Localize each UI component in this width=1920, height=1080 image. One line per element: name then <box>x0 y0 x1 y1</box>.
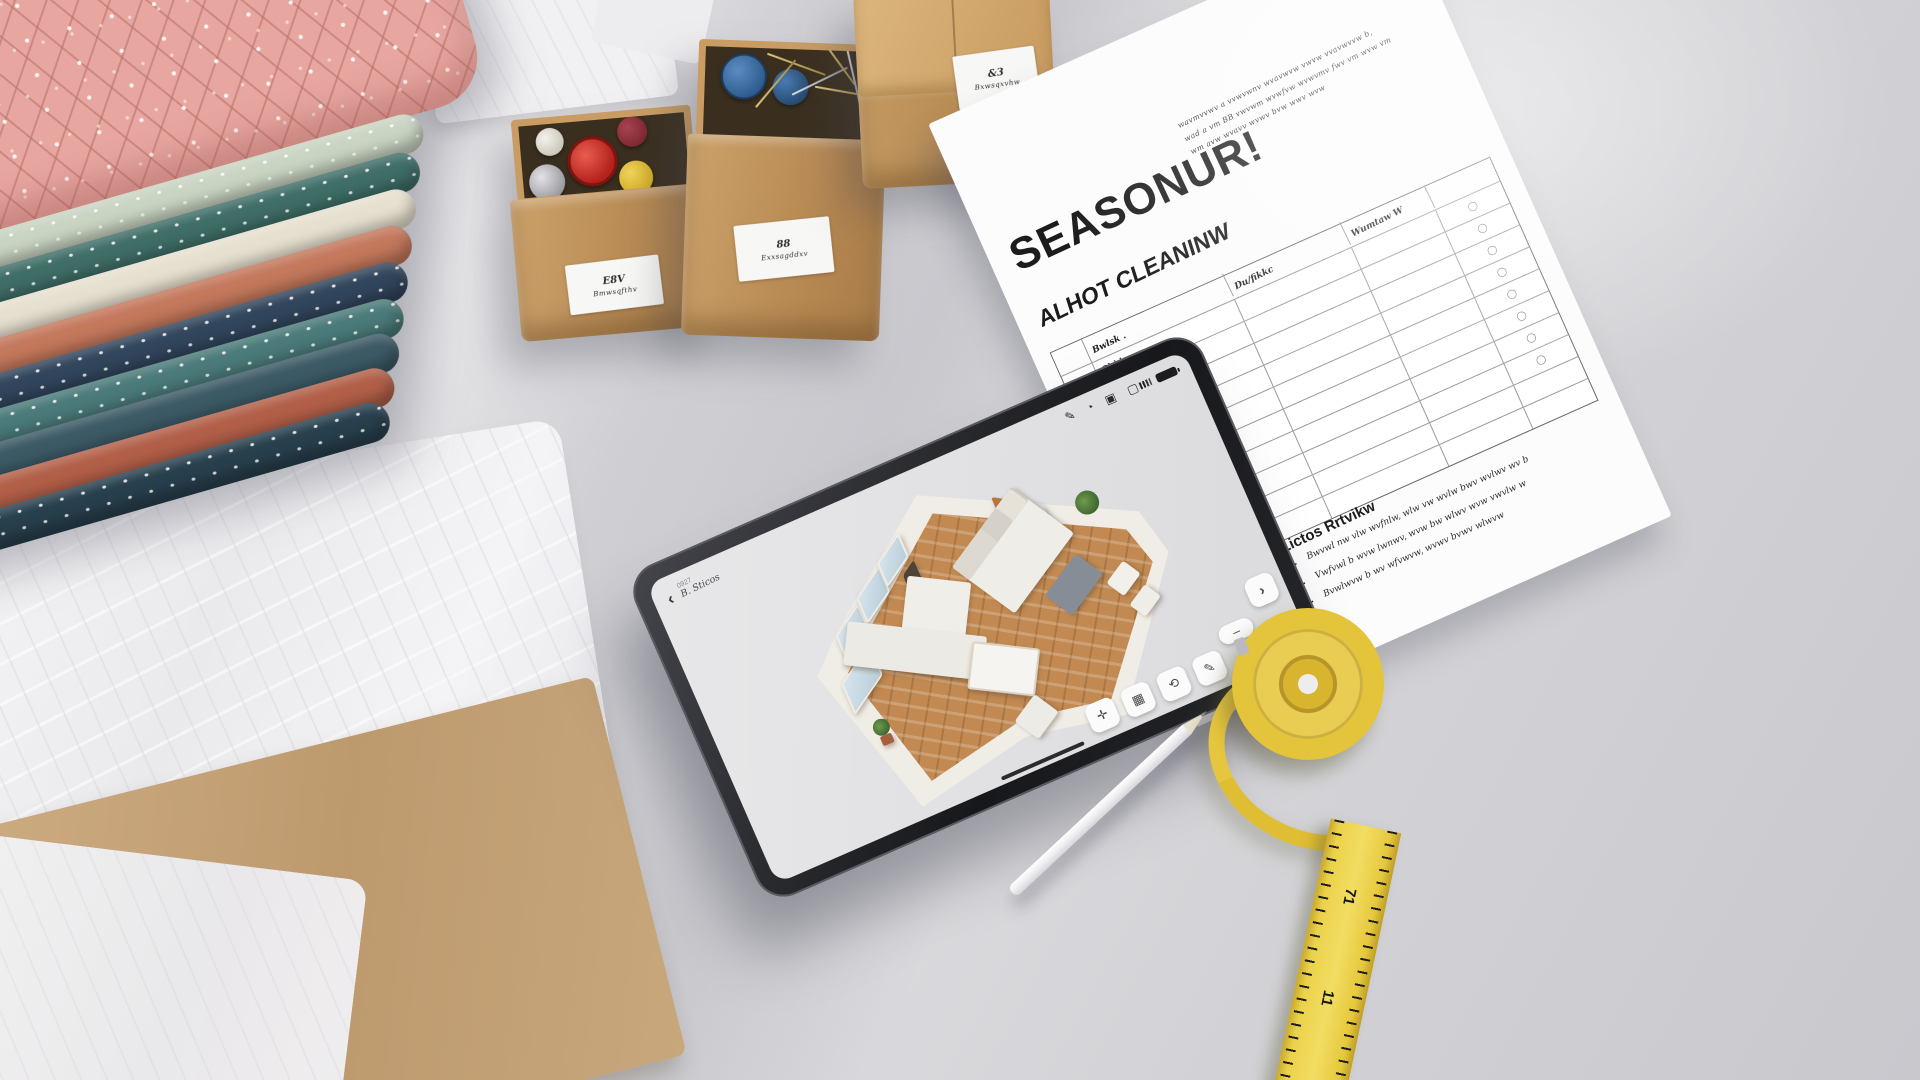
tape-tick-marks <box>1327 831 1397 1080</box>
box-label-line1: 88 <box>776 238 791 250</box>
thread-spool-red <box>565 134 619 188</box>
box-label: E8V Bmwsqfthv <box>565 254 664 315</box>
status-circle: ◯ <box>1466 199 1480 213</box>
box-label: 88 Exxsagddxv <box>733 216 834 282</box>
tape-number: 11 <box>1317 989 1337 1008</box>
tape-coil <box>1232 608 1384 760</box>
status-circle: ◯ <box>1534 353 1548 367</box>
tape-strip: 71 11 <box>1270 819 1401 1080</box>
signal-bars-icon <box>1139 378 1153 389</box>
status-circle: ◯ <box>1515 309 1529 323</box>
battery-icon <box>1155 366 1179 383</box>
tape-number: 71 <box>1339 887 1359 907</box>
app-header: ‹ 0927 B. Sticos <box>663 566 723 608</box>
status-circle: ◯ <box>1524 331 1538 345</box>
box-front: 88 Exxsagddxv <box>681 133 886 341</box>
paper-intro-line: wad a vm BB vwvwm wvwfvw wvwvmv fwv vm w… <box>1182 14 1433 146</box>
tape-tick-marks <box>1274 819 1344 1080</box>
layers-icon[interactable]: ▣ <box>1103 391 1118 407</box>
status-circle: ◯ <box>1495 265 1509 279</box>
paper-title: SEASONUR! <box>1002 121 1271 282</box>
tablet-screen: ‹ 0927 B. Sticos ✎ ◔ ▣ ▢ <box>646 350 1314 883</box>
tablet: ‹ 0927 B. Sticos ✎ ◔ ▣ ▢ <box>624 328 1336 906</box>
next-button[interactable]: › <box>1242 570 1282 610</box>
status-circle: ◯ <box>1505 287 1519 301</box>
box-label-line1: &3 <box>987 67 1004 80</box>
floorplan-coffee-table <box>967 641 1040 696</box>
thread-spool-white <box>534 127 564 157</box>
history-icon[interactable]: ◔ <box>1084 400 1095 414</box>
annotate-icon[interactable]: ✎ <box>1063 409 1077 424</box>
box-label-line2: Exxsagddxv <box>761 249 809 262</box>
paper-intro-line: wm avw wvavv wvwv bvw wwv wvw <box>1188 27 1439 159</box>
paper-intro: wavmvvwv a vvwvwnv wvavwvw vwvw vvavwvvw… <box>1175 1 1439 160</box>
paper-intro-line: wavmvvwv a vvwvwnv wvavwvw vwvw vvavwvvw… <box>1175 1 1426 133</box>
box-label-line1: E8V <box>602 273 626 287</box>
status-circle: ◯ <box>1485 243 1499 257</box>
box-label-line2: Bmwsqfthv <box>593 285 638 298</box>
status-circle: ◯ <box>1476 221 1490 235</box>
back-chevron-icon[interactable]: ‹ <box>665 590 677 608</box>
scene: E8V Bmwsqfthv 88 Exxsagddxv &3 Bx <box>0 0 1920 1080</box>
thread-spool-blue <box>720 53 768 101</box>
thread-spool-maroon <box>616 115 649 148</box>
